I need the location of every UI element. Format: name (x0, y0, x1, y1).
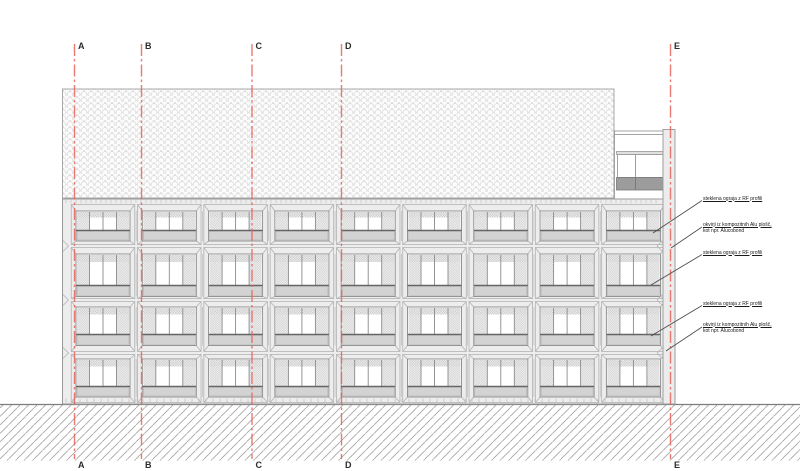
spandrel-panel (475, 336, 527, 345)
window-bay (71, 302, 136, 352)
roof-structure (615, 131, 664, 199)
spandrel-panel (276, 388, 328, 397)
grid-label-a-bottom: A (78, 460, 85, 470)
grid-label-e-bottom: E (674, 460, 680, 470)
spandrel-panel (210, 336, 262, 345)
annotation-alu-panels-1: okvirji iz kompozitnih Alu plošč, kot np… (703, 222, 772, 235)
spandrel-panel (210, 287, 262, 296)
window-bay (270, 355, 335, 403)
window-bay (469, 302, 534, 352)
spandrel-panel (342, 232, 394, 241)
spandrel-panel (77, 388, 129, 397)
annotation-glass-railing-2: steklena ograja z RF profili (703, 250, 762, 257)
roof-structure-window (636, 155, 664, 178)
window-bay (336, 355, 401, 403)
spandrel-panel (210, 232, 262, 241)
facade-end-pier (663, 130, 675, 405)
spandrel-panel (77, 232, 129, 241)
window-bay (403, 248, 468, 299)
window-bay (469, 355, 534, 403)
window-bay (336, 302, 401, 352)
window-bay (204, 355, 269, 403)
annotation-text: kot npr. Alucobond (703, 328, 772, 335)
window-bay (535, 355, 600, 403)
grid-label-a-top: A (78, 41, 85, 51)
spandrel-panel (409, 287, 461, 296)
annotation-alu-panels-2: okvirji iz kompozitnih Alu plošč, kot np… (703, 322, 772, 335)
spandrel-panel (409, 388, 461, 397)
elevation-drawing (0, 0, 800, 471)
window-bay (270, 248, 335, 299)
grid-label-b-top: B (145, 41, 152, 51)
window-bay (204, 302, 269, 352)
spandrel-panel (77, 287, 129, 296)
spandrel-panel (276, 336, 328, 345)
window-bay (270, 302, 335, 352)
spandrel-panel (77, 336, 129, 345)
spandrel-panel (475, 388, 527, 397)
window-bay (403, 355, 468, 403)
window-bay (535, 248, 600, 299)
spandrel-panel (607, 287, 659, 296)
spandrel-panel (210, 388, 262, 397)
leader-line (671, 227, 702, 248)
spandrel-panel (143, 287, 195, 296)
ground-hatch (0, 405, 800, 461)
grid-label-d-bottom: D (345, 460, 352, 470)
grid-label-c-top: C (256, 41, 263, 51)
window-bay (204, 248, 269, 299)
roof-railing-beam (615, 131, 664, 135)
roof-structure-dark-panel (617, 178, 664, 191)
window-bay (336, 248, 401, 299)
annotation-text: steklena ograja z RF profili (703, 196, 762, 203)
annotation-text: steklena ograja z RF profili (703, 301, 762, 308)
roof (63, 89, 615, 198)
spandrel-panel (409, 232, 461, 241)
window-bay (602, 355, 666, 403)
window-bay (535, 302, 600, 352)
spandrel-panel (276, 232, 328, 241)
spandrel-panel (607, 232, 659, 241)
spandrel-panel (342, 287, 394, 296)
window-bay (71, 248, 136, 299)
spandrel-panel (475, 232, 527, 241)
grid-label-e-top: E (674, 41, 680, 51)
window-bay (71, 355, 136, 403)
window-bay (403, 302, 468, 352)
window-bay (138, 302, 203, 352)
grid-label-c-bottom: C (256, 460, 263, 470)
spandrel-panel (541, 232, 593, 241)
grid-label-b-bottom: B (145, 460, 152, 470)
elevation-sheet: AABBCCDDEE steklena ograja z RF profili … (0, 0, 800, 471)
annotation-text: kot npr. Alucobond (703, 228, 772, 235)
spandrel-panel (475, 287, 527, 296)
spandrel-panel (143, 388, 195, 397)
spandrel-panel (342, 388, 394, 397)
spandrel-panel (276, 287, 328, 296)
spandrel-panel (541, 336, 593, 345)
window-bay (602, 302, 666, 352)
annotation-glass-railing-3: steklena ograja z RF profili (703, 301, 762, 308)
window-bay (602, 248, 666, 299)
window-bay (469, 248, 534, 299)
spandrel-panel (143, 232, 195, 241)
grid-label-d-top: D (345, 41, 352, 51)
spandrel-panel (342, 336, 394, 345)
spandrel-panel (541, 287, 593, 296)
annotation-glass-railing-1: steklena ograja z RF profili (703, 196, 762, 203)
window-bay (138, 355, 203, 403)
window-bay (138, 248, 203, 299)
roof-structure-window (618, 155, 636, 178)
spandrel-panel (541, 388, 593, 397)
spandrel-panel (143, 336, 195, 345)
spandrel-panel (409, 336, 461, 345)
spandrel-panel (607, 388, 659, 397)
annotation-text: steklena ograja z RF profili (703, 250, 762, 257)
spandrel-panel (607, 336, 659, 345)
